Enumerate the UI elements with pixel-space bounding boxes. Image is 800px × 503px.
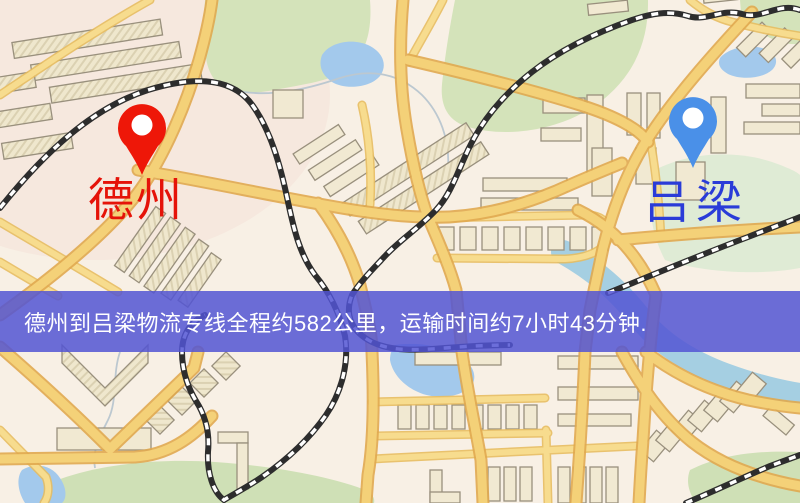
destination-pin-hole [683, 108, 704, 129]
route-info-banner: 德州到吕梁物流专线全程约582公里，运输时间约7小时43分钟. [0, 291, 800, 352]
route-info-text: 德州到吕梁物流专线全程约582公里，运输时间约7小时43分钟. [24, 306, 647, 338]
origin-pin-hole [132, 115, 153, 136]
origin-label: 德州 [88, 177, 184, 223]
map-canvas[interactable] [0, 0, 800, 503]
destination-label: 吕梁 [644, 179, 748, 225]
map-view: 德州 吕梁 德州到吕梁物流专线全程约582公里，运输时间约7小时43分钟. [0, 0, 800, 503]
